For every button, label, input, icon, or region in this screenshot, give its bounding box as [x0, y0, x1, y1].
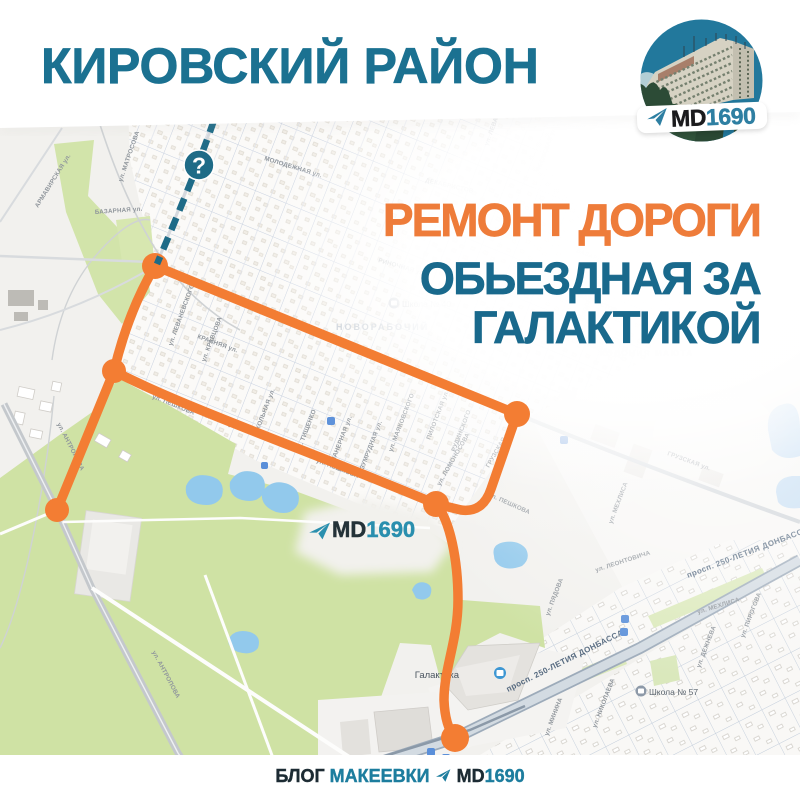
svg-text:Школа № 57: Школа № 57: [649, 687, 698, 697]
svg-text:?: ?: [192, 153, 206, 179]
svg-text:Галактика: Галактика: [415, 670, 460, 681]
